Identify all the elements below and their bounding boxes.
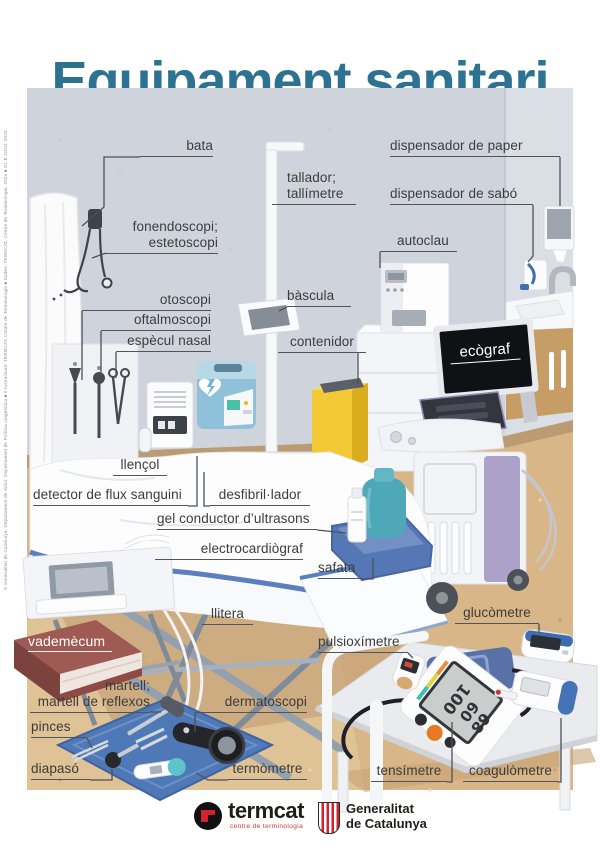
label-gel-conductor: gel conductor d’ultrasons xyxy=(157,511,317,530)
label-especul-nasal: espècul nasal xyxy=(116,333,211,352)
label-pinces: pinces xyxy=(31,719,87,738)
label-safata: safata xyxy=(318,560,362,579)
label-termometre: termòmetre xyxy=(228,761,307,780)
defibrillator-illustration xyxy=(197,361,256,429)
label-oftalmoscopi: oftalmoscopi xyxy=(101,312,211,331)
instrument-wall-panel xyxy=(52,344,138,472)
termcat-logo-icon xyxy=(194,802,222,830)
label-desfibrillador: desfibril·lador xyxy=(210,487,310,506)
generalitat-shield-icon xyxy=(318,802,340,834)
label-dispensador-de-sabo: dispensador de sabó xyxy=(390,186,533,205)
termcat-tagline: centre de terminologia xyxy=(230,823,303,830)
label-electrocardiograf: electrocardiògraf xyxy=(155,541,303,560)
gel-bottle xyxy=(348,488,366,542)
label-bascula: bàscula xyxy=(287,288,351,307)
label-bata: bata xyxy=(140,138,213,157)
poster: Equipament sanitari xyxy=(0,0,600,848)
label-detector-flux: detector de flux sanguini xyxy=(33,487,188,506)
label-otoscopi: otoscopi xyxy=(82,292,211,311)
footer: termcat centre de terminologia Generalit… xyxy=(0,796,600,844)
label-tallador: tallador; tallímetre xyxy=(272,170,356,205)
label-contenidor: contenidor xyxy=(278,334,366,353)
label-llencol: llençol xyxy=(113,457,167,476)
label-diapaso: diapasó xyxy=(31,761,90,780)
label-dermatoscopi: dermatoscopi xyxy=(195,694,307,713)
label-autoclau: autoclau xyxy=(380,233,457,252)
credit-line: © Generalitat de Catalunya. Departament … xyxy=(3,120,8,590)
label-dispensador-de-paper: dispensador de paper xyxy=(390,138,560,157)
termcat-logo-text: termcat xyxy=(228,798,304,824)
label-fonendoscopi: fonendoscopi; estetoscopi xyxy=(106,219,218,254)
label-llitera: llitera xyxy=(202,606,253,625)
generalitat-logo-text: Generalitat de Catalunya xyxy=(346,801,427,831)
label-martell: martell; martell de reflexos xyxy=(30,678,150,713)
label-glucometre: glucòmetre xyxy=(455,605,539,624)
soap-dispenser-illustration xyxy=(520,260,547,290)
label-tensimetre: tensímetre xyxy=(371,763,447,782)
room-illustration: 100 60 68 xyxy=(0,0,600,848)
label-pulsioximetre: pulsioxímetre xyxy=(318,634,408,653)
label-vademecum: vademècum xyxy=(28,633,112,652)
label-coagulometre: coagulòmetre xyxy=(463,763,558,782)
